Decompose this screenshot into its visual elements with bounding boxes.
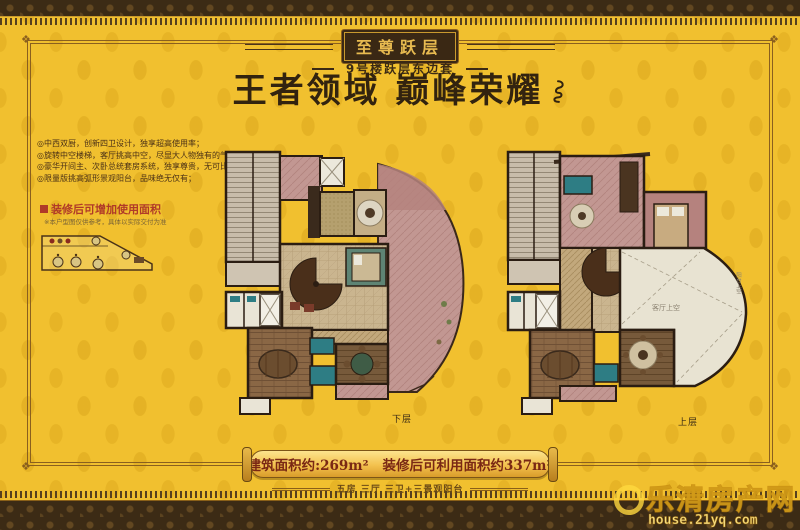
living-room	[280, 244, 388, 330]
balcony-lower	[336, 384, 388, 399]
subtitle-dash-left	[312, 68, 334, 70]
header-title-row: 王者领域 巅峰荣耀	[0, 74, 800, 110]
area-banner-text: 建筑面积约:269m²装修后可利用面积约337m²	[248, 454, 553, 474]
watermark-site-name: 乐清房产网	[646, 486, 796, 514]
balcony-upper	[560, 386, 616, 401]
kitchen-appliance-wall	[308, 186, 320, 238]
lower-floor-label: 下层	[392, 412, 412, 425]
seal-ornament-icon	[549, 78, 567, 106]
bathtub	[310, 366, 336, 385]
poster: ❖ ❖ ❖ ❖ 至尊跃层 9号楼跃层东边套 王者领域 巅峰荣耀 ◎中西双厨，创新…	[0, 0, 800, 530]
corner-rosette-icon: ❖	[769, 461, 779, 472]
stairwell	[508, 152, 560, 284]
header-badge-row: 至尊跃层	[0, 29, 800, 64]
shower	[310, 338, 334, 354]
subline-dash-right	[470, 488, 528, 489]
layout-subline-row: 五房 三厅 三卫+三景观阳台	[250, 482, 550, 495]
kitchen	[320, 192, 354, 236]
top-border-strip	[0, 0, 800, 17]
layout-subline: 五房 三厅 三卫+三景观阳台	[337, 482, 464, 495]
stairwell	[226, 152, 280, 286]
balcony-void-label: 阳台上空	[735, 271, 742, 295]
floorplan-upper: 客厅上空 阳台上空	[508, 152, 746, 414]
floorplan-lower	[226, 152, 463, 414]
bedroom-lower-left	[248, 328, 312, 398]
area2-value: 337m²	[504, 458, 552, 474]
renovation-inset-title-text: 装修后可增加使用面积	[51, 201, 161, 217]
corner-rosette-icon: ❖	[21, 461, 31, 472]
renovation-inset-title: 装修后可增加使用面积	[40, 201, 161, 217]
bathtub	[594, 364, 618, 382]
master-suite	[560, 156, 644, 248]
study-room	[336, 344, 388, 384]
area-banner: 建筑面积约:269m²装修后可利用面积约337m² 五房 三厅 三卫+三景观阳台	[250, 450, 550, 495]
elevator-shaft	[320, 158, 344, 186]
badge-line-right	[467, 44, 555, 50]
upper-floor-label: 上层	[678, 415, 698, 428]
utility-box	[522, 398, 552, 414]
utility-box	[240, 398, 270, 414]
renovation-sketch	[38, 224, 158, 274]
breakfast-room	[354, 190, 386, 236]
top-dotted-band	[0, 18, 800, 25]
terrace-curved	[378, 164, 463, 392]
bathrooms	[226, 292, 282, 328]
feature-item: ◎中西双厨，创新四卫设计，独享超高使用率；	[37, 138, 252, 150]
badge-line-left	[245, 44, 333, 50]
subtitle-dash-right	[466, 68, 488, 70]
site-watermark: 乐清房产网 house.21yq.com	[614, 485, 796, 530]
header-badge: 至尊跃层	[341, 29, 459, 64]
page-title: 王者领域 巅峰荣耀	[233, 74, 544, 110]
floorplans: 客厅上空 阳台上空	[216, 150, 750, 422]
void-label: 客厅上空	[652, 303, 680, 312]
family-room	[620, 330, 674, 386]
subline-dash-left	[272, 488, 330, 489]
area2-label: 装修后可利用面积约	[383, 458, 505, 474]
area1-label: 建筑面积约:	[248, 458, 320, 474]
bathrooms	[508, 292, 560, 330]
red-square-icon	[40, 205, 48, 213]
area-banner-scroll: 建筑面积约:269m²装修后可利用面积约337m²	[250, 450, 550, 478]
site-logo-icon	[614, 485, 644, 515]
area1-value: 269m²	[320, 458, 368, 474]
